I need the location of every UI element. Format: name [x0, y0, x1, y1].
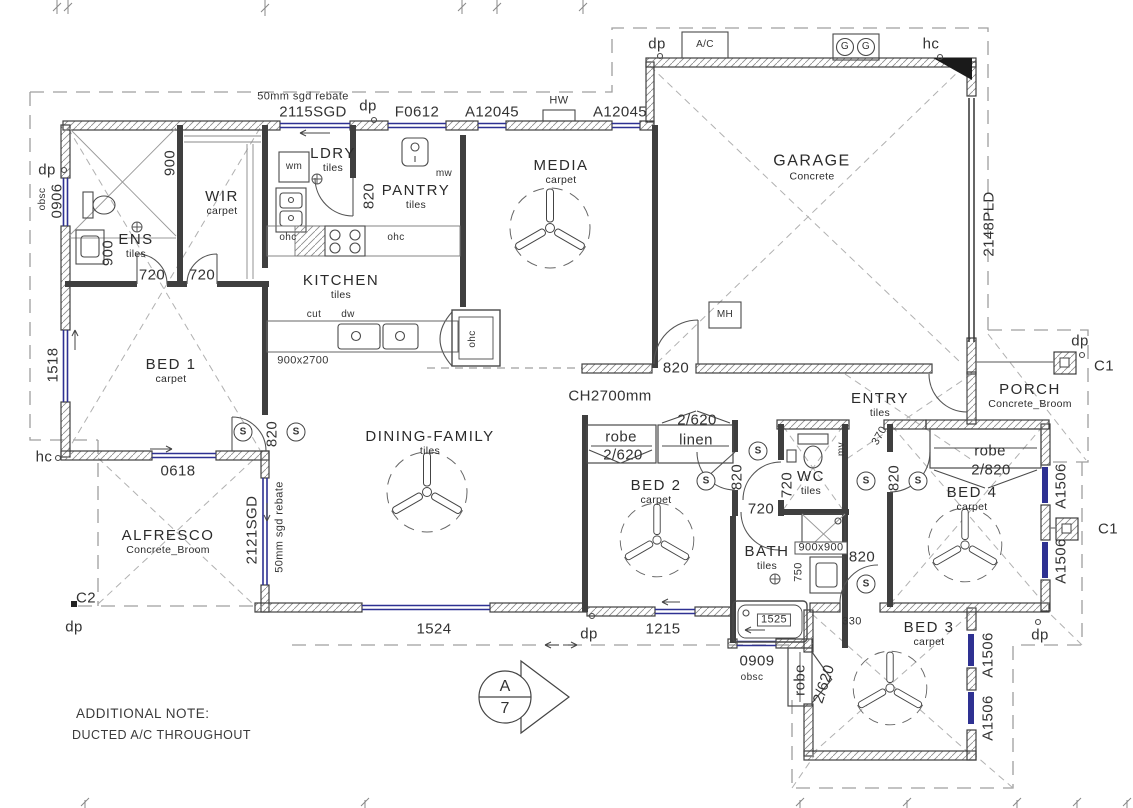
dim-900x2700: 900x2700: [277, 356, 329, 367]
room-finish: tiles: [118, 249, 153, 260]
ohc-label: ohc: [279, 233, 296, 243]
dim-820: 820: [849, 550, 875, 565]
dp-label: dp: [580, 627, 598, 642]
dim-720: 720: [748, 502, 774, 517]
room-name: LDRY: [310, 146, 356, 162]
dim-720: 720: [780, 472, 795, 498]
dim-720: 720: [189, 268, 215, 283]
opening-a12045-1: A12045: [465, 105, 519, 120]
room-name: GARAGE: [773, 154, 850, 171]
smoke-alarm: S: [749, 442, 768, 461]
note-sgd-rebate-alfresco: 50mm sgd rebate: [275, 481, 286, 573]
room-finish: Concrete: [773, 171, 850, 182]
gas-meter-g1: G: [841, 42, 849, 52]
room-label-dining-family: DINING-FAMILY tiles: [365, 429, 494, 457]
window-1518: 1518: [46, 348, 61, 383]
section-marker-number: 7: [501, 700, 510, 718]
mv-label: mv: [837, 442, 847, 456]
room-name: DINING-FAMILY: [365, 429, 494, 445]
opening-a12045-2: A12045: [593, 105, 647, 120]
room-label-media: MEDIA carpet: [533, 158, 588, 186]
section-marker-letter: A: [500, 678, 511, 696]
room-name: ENS: [118, 232, 153, 248]
hc-label: hc: [923, 37, 940, 52]
room-label-wc: WC tiles: [797, 469, 825, 497]
room-name: BED 2: [631, 478, 682, 494]
additional-note-body: DUCTED A/C THROUGHOUT: [72, 728, 251, 742]
note-sgd-rebate-top: 50mm sgd rebate: [257, 92, 349, 103]
room-label-ldry: LDRY tiles: [310, 146, 356, 174]
ohc-label: ohc: [387, 233, 404, 243]
room-finish: tiles: [382, 200, 450, 211]
room-name: BED 4: [947, 485, 998, 501]
window-a1506: A1506: [1054, 463, 1069, 508]
floorplan-linework: [0, 0, 1133, 808]
window-1215: 1215: [646, 622, 681, 637]
dim-900: 900: [163, 150, 178, 176]
window-a1506: A1506: [981, 632, 996, 677]
dp-label: dp: [359, 99, 377, 114]
window-a1506: A1506: [981, 695, 996, 740]
dim-820: 820: [730, 464, 745, 490]
dp-label: dp: [38, 163, 56, 178]
section-marker: [479, 661, 569, 733]
room-finish: tiles: [797, 486, 825, 497]
window-1524: 1524: [417, 622, 452, 637]
room-finish: carpet: [947, 502, 998, 513]
smoke-alarm: S: [697, 472, 716, 491]
linen-doors-2620: 2/620: [677, 413, 717, 428]
smoke-alarm: S: [857, 575, 876, 594]
linen-label: linen: [679, 433, 713, 448]
shower-900x900: 900x900: [794, 542, 847, 555]
window-a1506: A1506: [1054, 538, 1069, 583]
dim-750: 750: [794, 562, 805, 582]
opening-f0612: F0612: [395, 105, 440, 120]
mw-label: mw: [436, 169, 452, 179]
dp-label: dp: [65, 620, 83, 635]
room-name: WC: [797, 469, 825, 485]
room-name: BED 1: [146, 357, 197, 373]
gas-meter-g2: G: [862, 42, 870, 52]
room-finish: tiles: [745, 561, 790, 572]
cut-label: cut: [307, 310, 322, 320]
smoke-alarm: S: [909, 472, 928, 491]
dim-330: 330: [842, 617, 862, 628]
room-finish: Concrete_Broom: [988, 399, 1072, 410]
room-name: BATH: [745, 544, 790, 560]
room-finish: carpet: [904, 637, 955, 648]
ohc-label: ohc: [468, 330, 478, 347]
room-name: PANTRY: [382, 183, 450, 199]
room-label-bed4: BED 4 carpet: [947, 485, 998, 513]
robe-doors-2820: 2/820: [971, 463, 1011, 478]
dp-label: dp: [1071, 334, 1089, 349]
room-label-entry: ENTRY tiles: [851, 391, 909, 419]
window-0909: 0909: [740, 654, 775, 669]
room-label-pantry: PANTRY tiles: [382, 183, 450, 211]
hc-label: hc: [36, 450, 53, 465]
obsc-label: obsc: [38, 188, 48, 211]
room-finish: carpet: [146, 374, 197, 385]
dim-720: 720: [139, 268, 165, 283]
column-c1: C1: [1094, 359, 1114, 374]
dim-900: 900: [101, 240, 116, 266]
room-name: ALFRESCO: [122, 528, 215, 544]
dim-820: 820: [887, 465, 902, 491]
mh-label: MH: [717, 310, 733, 320]
dp-label: dp: [1031, 628, 1049, 643]
garage-panel-door: [969, 98, 974, 342]
window-0906: 0906: [50, 184, 65, 219]
smoke-alarm: S: [234, 423, 253, 442]
robe-doors-2620: 2/620: [603, 448, 643, 463]
floor-plan: ENS tiles WIR carpet LDRY tiles PANTRY t…: [0, 0, 1133, 808]
dp-label: dp: [648, 37, 666, 52]
dim-820: 820: [661, 361, 691, 376]
room-name: MEDIA: [533, 158, 588, 174]
robe-label-bed3: robe: [793, 664, 808, 696]
column-c1: C1: [1098, 522, 1118, 537]
opening-2121sgd: 2121SGD: [245, 496, 260, 565]
room-finish: tiles: [310, 163, 356, 174]
room-finish: tiles: [851, 408, 909, 419]
room-name: BED 3: [904, 620, 955, 636]
dim-820: 820: [265, 421, 280, 447]
bath-1525: 1525: [757, 614, 791, 627]
smoke-alarm: S: [857, 472, 876, 491]
dw-label: dw: [341, 310, 355, 320]
ceiling-height-note: CH2700mm: [568, 389, 651, 404]
ac-unit-label: A/C: [696, 40, 714, 50]
room-label-ens: ENS tiles: [118, 232, 153, 260]
room-name: WIR: [205, 189, 239, 205]
window-0618: 0618: [161, 464, 196, 479]
room-finish: tiles: [303, 290, 379, 301]
room-finish: tiles: [365, 446, 494, 457]
opening-2148pld: 2148PLD: [982, 191, 997, 256]
room-label-bath: BATH tiles: [745, 544, 790, 572]
robe-label-bed2: robe: [605, 430, 637, 445]
obsc-label: obsc: [741, 673, 764, 683]
room-finish: Concrete_Broom: [122, 545, 215, 556]
smoke-alarm: S: [287, 423, 306, 442]
room-label-kitchen: KITCHEN tiles: [303, 273, 379, 301]
room-label-bed2: BED 2 carpet: [631, 478, 682, 506]
room-finish: carpet: [205, 206, 239, 217]
room-label-bed3: BED 3 carpet: [904, 620, 955, 648]
room-name: ENTRY: [851, 391, 909, 407]
robe-label-bed4: robe: [974, 444, 1006, 459]
room-name: PORCH: [988, 382, 1072, 398]
room-label-wir: WIR carpet: [205, 189, 239, 217]
wm-label: wm: [286, 162, 302, 172]
column-c2: C2: [76, 591, 96, 606]
hw-label: HW: [549, 96, 568, 107]
opening-2115sgd: 2115SGD: [279, 105, 347, 120]
additional-note-title: ADDITIONAL NOTE:: [76, 706, 210, 721]
dim-820: 820: [362, 183, 377, 209]
room-finish: carpet: [631, 495, 682, 506]
room-label-porch: PORCH Concrete_Broom: [988, 382, 1072, 410]
room-label-alfresco: ALFRESCO Concrete_Broom: [122, 528, 215, 556]
room-label-bed1: BED 1 carpet: [146, 357, 197, 385]
room-label-garage: GARAGE Concrete: [773, 154, 850, 183]
room-name: KITCHEN: [303, 273, 379, 289]
room-finish: carpet: [533, 175, 588, 186]
